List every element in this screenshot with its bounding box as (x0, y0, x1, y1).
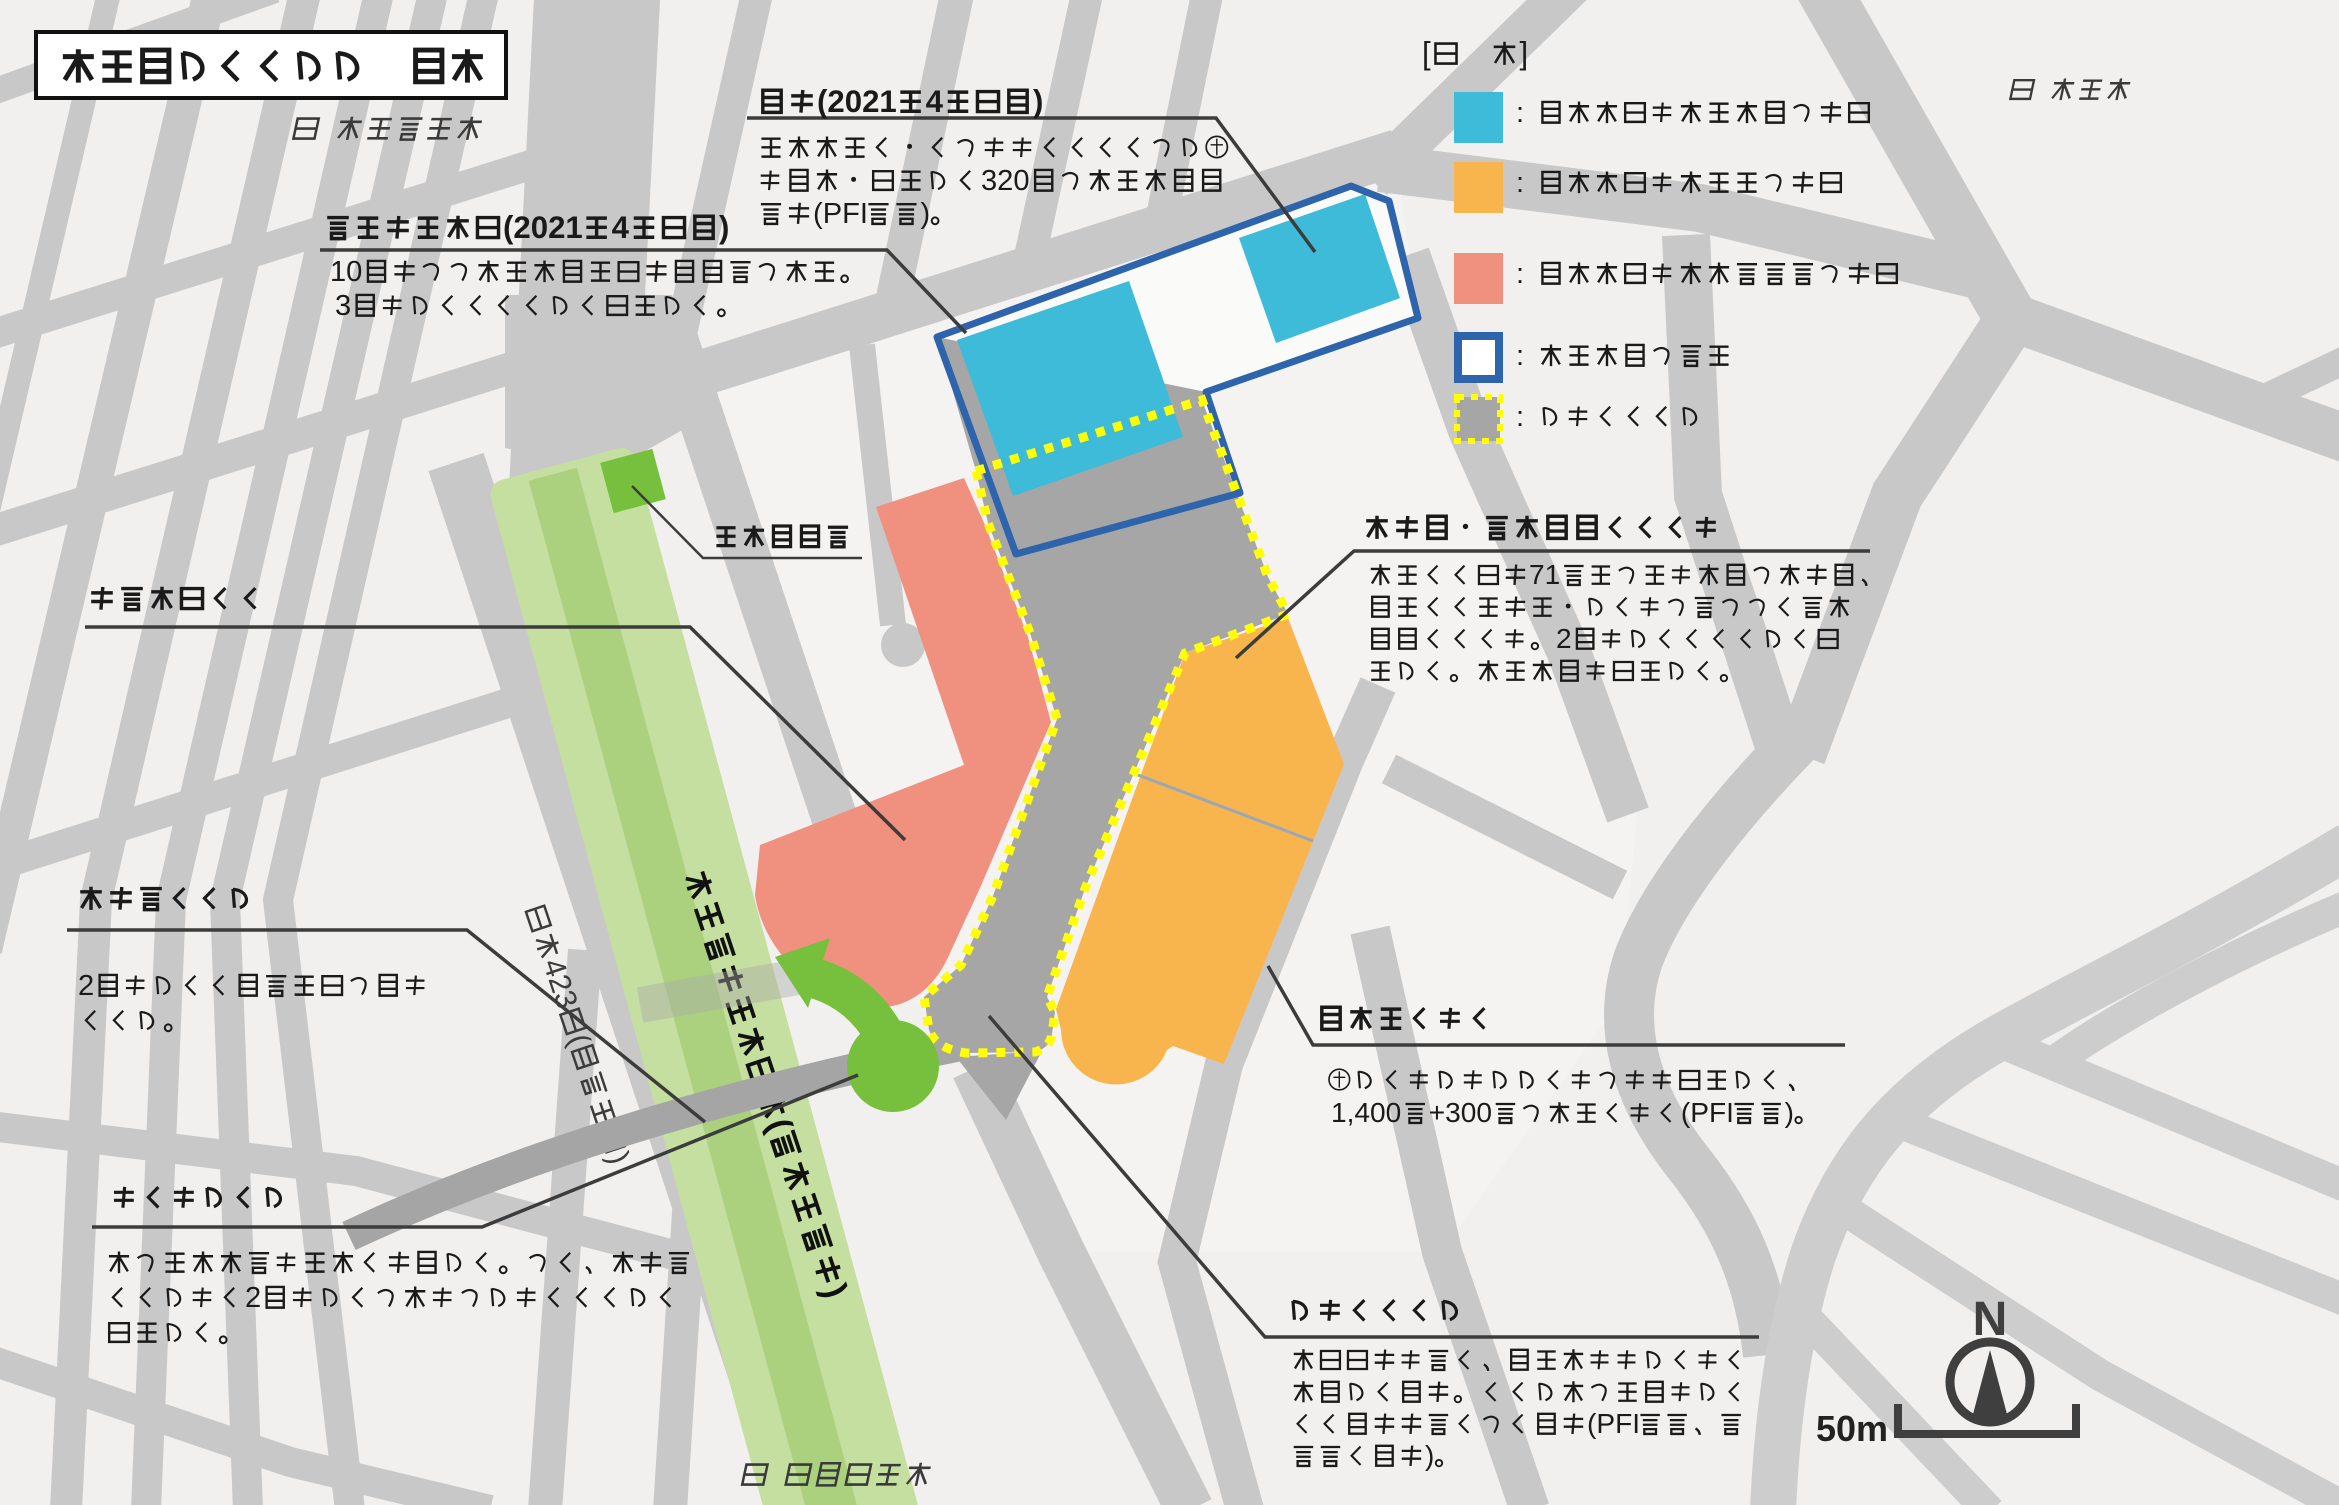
svg-text:): ) (921, 198, 931, 230)
svg-text:+300: +300 (1429, 1097, 1492, 1128)
svg-text:(PFI: (PFI (1681, 1097, 1734, 1128)
svg-text:2: 2 (245, 1282, 261, 1314)
svg-text:]: ] (1520, 36, 1529, 71)
svg-text::: : (1516, 401, 1524, 433)
svg-text:): ) (719, 210, 729, 245)
svg-text:N: N (1973, 1293, 2008, 1346)
svg-text:(2021: (2021 (503, 210, 583, 245)
svg-text:1,400: 1,400 (1331, 1097, 1401, 1128)
svg-text::: : (1516, 258, 1524, 290)
svg-text:2: 2 (78, 970, 94, 1002)
svg-text::: : (1516, 167, 1524, 199)
svg-text::: : (1516, 97, 1524, 129)
svg-text::: : (1516, 340, 1524, 372)
svg-text:50m: 50m (1816, 1408, 1888, 1449)
svg-text:): ) (1425, 1440, 1434, 1471)
svg-text:71: 71 (1529, 559, 1560, 590)
svg-text:): ) (1033, 84, 1043, 119)
svg-text:320: 320 (981, 165, 1030, 197)
svg-text:4: 4 (612, 210, 630, 245)
svg-text:(PFI: (PFI (813, 198, 868, 230)
svg-text:10: 10 (330, 256, 362, 288)
svg-text:3: 3 (335, 290, 351, 322)
svg-text:(2021: (2021 (817, 84, 897, 119)
svg-text:): ) (1785, 1097, 1794, 1128)
svg-text:2: 2 (1556, 623, 1572, 654)
svg-text:(PFI: (PFI (1587, 1408, 1640, 1439)
svg-text:4: 4 (926, 84, 944, 119)
svg-text:[: [ (1422, 36, 1431, 71)
